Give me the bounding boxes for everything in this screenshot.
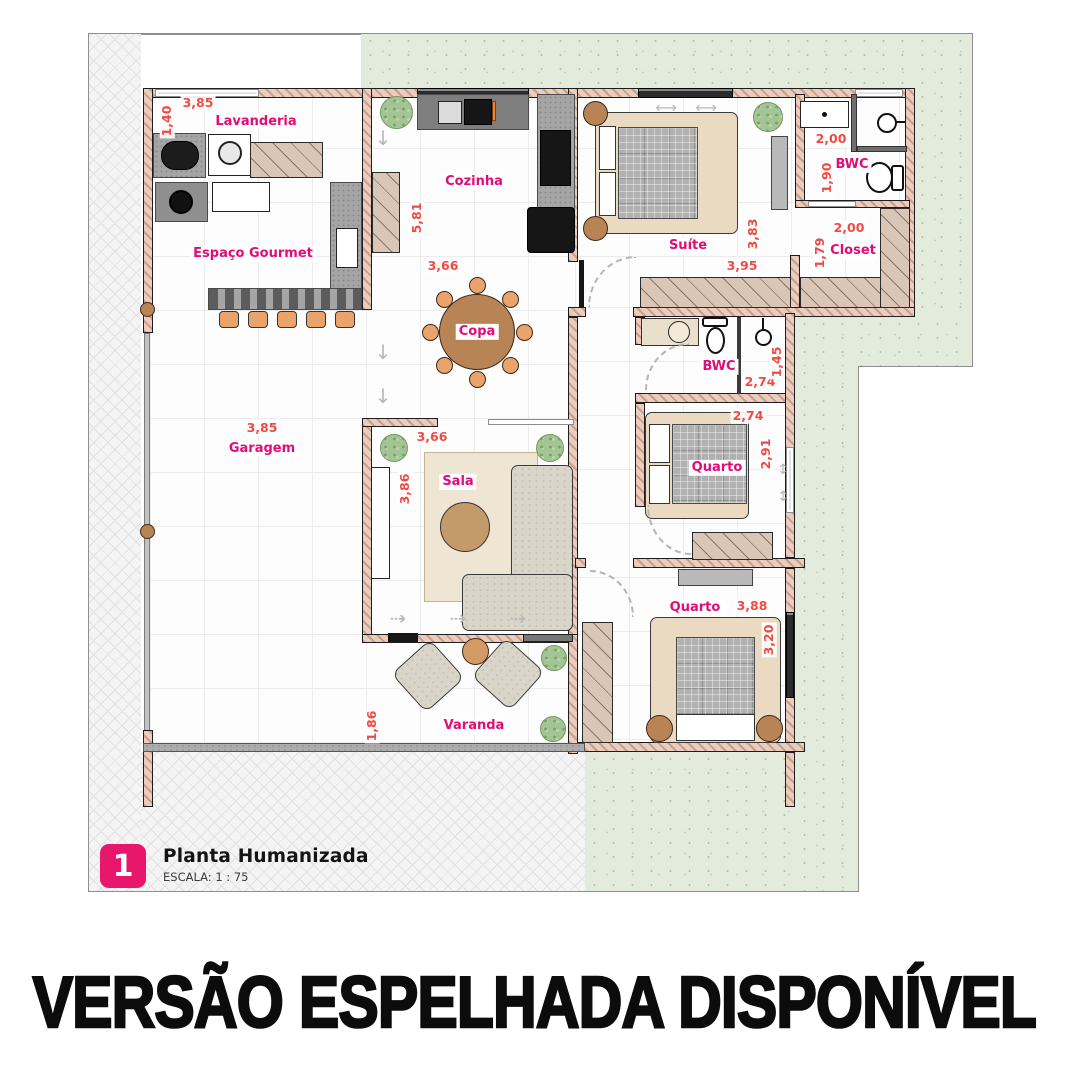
dim-lavanderia-h: 1,40	[160, 104, 175, 139]
room-label-quarto-fundo: Quarto	[667, 600, 724, 616]
flow-arrow-down: ↓	[375, 342, 392, 362]
garage-column	[140, 302, 155, 317]
laundry-sink	[161, 141, 199, 170]
bwc2-basin	[668, 321, 690, 343]
dim-quarto-fundo-w: 3,88	[735, 599, 770, 614]
dim-cozinha-h: 5,81	[410, 201, 425, 236]
suite-nightstand	[583, 216, 608, 241]
bar-stool	[219, 311, 239, 328]
wall-stub-bottom-right	[785, 752, 795, 807]
bwc2-toilet-tank	[702, 317, 728, 327]
washing-machine-drum	[218, 141, 242, 165]
dining-chair	[502, 357, 519, 374]
bwc1-shower-divider	[851, 94, 857, 152]
room-label-espaco-gourmet: Espaço Gourmet	[190, 246, 316, 262]
tv-panel-quarto2	[678, 569, 753, 586]
quarto2-foot-bench	[676, 714, 755, 741]
dim-suite-w: 3,95	[725, 259, 760, 274]
flow-arrow: ⇢	[510, 608, 527, 628]
window-arrow: ↕	[777, 490, 789, 504]
wall-quarto1-bottom-a	[575, 558, 586, 568]
dim-sala-w: 3,66	[415, 430, 450, 445]
dim-garagem-w: 3,85	[245, 421, 280, 436]
dim-bwc-social-h: 1,45	[770, 345, 785, 380]
gourmet-counter	[212, 182, 270, 212]
room-label-lavanderia: Lavanderia	[212, 114, 299, 130]
bwc2-shower-arm	[762, 318, 764, 330]
bwc2-shower-divider	[737, 317, 741, 394]
window-arrow: ↕	[777, 463, 789, 477]
floor-plan-image: ⟷ ⟷ ↕ ↕ ⇢ ⇢ ⇢	[0, 0, 1069, 1080]
sala-door-leaf	[388, 633, 418, 642]
room-label-quarto-meio: Quarto	[689, 460, 746, 476]
garage-column	[140, 524, 155, 539]
suite-mattress	[618, 127, 698, 219]
wall-suite-bottom-a	[568, 307, 586, 317]
plant-sala	[536, 434, 564, 462]
bwc1-shower-head	[877, 113, 897, 133]
window-suite	[638, 88, 733, 98]
wall-right-mid	[785, 313, 795, 558]
bar-stool	[277, 311, 297, 328]
kitchen-cooktop	[464, 99, 492, 125]
plant-sala	[380, 434, 408, 462]
plant-varanda	[541, 645, 567, 671]
dim-lavanderia-w: 3,85	[181, 96, 216, 111]
plant-cozinha	[380, 96, 413, 129]
title-number: 1	[113, 849, 134, 884]
room-label-suite: Suíte	[666, 238, 710, 254]
wall-quarto2-bottom	[575, 742, 805, 752]
plan-title: Planta Humanizada	[163, 846, 369, 867]
window-bwc-suite	[855, 89, 903, 97]
wall-varanda-right	[568, 634, 578, 754]
flow-arrow-down: ↓	[375, 386, 392, 406]
dim-varanda-h: 1,86	[365, 709, 380, 744]
plant-suite	[753, 102, 783, 132]
dining-chair	[469, 371, 486, 388]
bwc1-drain	[822, 112, 827, 117]
varanda-low-wall	[143, 743, 585, 752]
flow-arrow: ⇢	[390, 608, 407, 628]
room-label-varanda: Varanda	[441, 718, 508, 734]
window-sala-copa	[488, 419, 574, 425]
dim-suite-h: 3,83	[746, 217, 761, 252]
dim-sala-h: 3,86	[398, 472, 413, 507]
gourmet-sink	[336, 228, 358, 268]
bwc1-shower-arm	[896, 121, 906, 123]
tv-panel-suite	[771, 136, 788, 210]
dining-chair	[422, 324, 439, 341]
varanda-side-table	[462, 638, 489, 665]
door-bwc-threshold	[808, 201, 856, 207]
cooktop-handle	[492, 101, 496, 121]
room-label-bwc-social: BWC	[699, 359, 738, 375]
room-label-cozinha: Cozinha	[442, 174, 506, 190]
coffee-table	[440, 502, 490, 552]
plant-varanda	[540, 716, 566, 742]
wall-suite-bottom-b	[633, 307, 915, 317]
wall-gourmet-cozinha	[362, 88, 372, 310]
wall-quarto1-left	[635, 403, 645, 507]
banner-text: VERSÃO ESPELHADA DISPONÍVEL	[33, 962, 1036, 1044]
quarto2-mattress	[676, 637, 755, 715]
kitchen-cabinet-left	[372, 172, 400, 253]
room-label-copa: Copa	[456, 324, 499, 340]
paving-left	[89, 34, 141, 891]
dim-closet-h: 1,79	[813, 236, 828, 271]
room-label-closet: Closet	[827, 243, 879, 259]
suite-pillow	[599, 172, 616, 216]
window-slide-arrow: ⟷	[695, 101, 717, 116]
quarto2-wardrobe	[582, 622, 613, 743]
closet-wardrobe-right	[880, 208, 910, 308]
quarto2-nightstand	[756, 715, 783, 742]
sliding-door	[523, 634, 573, 642]
refrigerator	[527, 207, 575, 253]
quarto1-pillow	[649, 424, 670, 463]
dim-quarto-fundo-h: 3,20	[762, 623, 777, 658]
tv-panel-sala	[371, 467, 390, 579]
dim-bwc-suite-w: 2,00	[814, 132, 849, 147]
bar-stool	[306, 311, 326, 328]
flow-arrow-down: ↓	[375, 128, 392, 148]
wall-bwc2-bottom	[635, 393, 795, 403]
title-number-badge: 1	[100, 844, 146, 888]
window-slide-arrow: ⟷	[655, 101, 677, 116]
grass-mid	[795, 317, 972, 366]
grass-top	[361, 34, 972, 94]
bar-stool	[248, 311, 268, 328]
wall-suite-closet	[790, 255, 800, 310]
grass-bottom	[585, 752, 795, 891]
bbq-burner	[169, 190, 193, 214]
wall-stub-bottom-left	[143, 730, 153, 807]
dining-chair	[469, 277, 486, 294]
window-quarto2	[786, 612, 794, 698]
bwc1-shower-sill	[857, 146, 907, 152]
suite-pillow	[599, 126, 616, 170]
flow-arrow: ⇢	[450, 608, 467, 628]
quarto2-nightstand	[646, 715, 673, 742]
fence-left	[144, 333, 150, 745]
room-label-bwc-suite: BWC	[832, 157, 871, 173]
bwc2-shower-head	[755, 329, 772, 346]
dim-cozinha-w: 3,66	[426, 259, 461, 274]
plan-scale: ESCALA: 1 : 75	[163, 870, 248, 884]
room-label-garagem: Garagem	[226, 441, 298, 457]
bwc2-toilet-bowl	[706, 327, 725, 354]
dim-quarto-meio-h: 2,91	[759, 437, 774, 472]
banner: VERSÃO ESPELHADA DISPONÍVEL	[0, 962, 1069, 1044]
dining-chair	[516, 324, 533, 341]
quarto1-wardrobe	[692, 532, 773, 560]
hall-door-leaf	[579, 260, 584, 307]
bwc1-toilet-tank	[891, 165, 904, 191]
bar-counter	[208, 288, 362, 310]
dim-quarto-meio-w: 2,74	[731, 409, 766, 424]
suite-wardrobe	[640, 277, 791, 308]
kitchen-stove	[540, 130, 571, 186]
wall-left	[143, 88, 153, 333]
closet-wardrobe-bottom	[800, 277, 881, 308]
laundry-cabinet	[250, 142, 323, 178]
kitchen-sink	[438, 101, 462, 124]
room-label-sala: Sala	[439, 474, 476, 490]
wall-sala-top	[362, 418, 438, 427]
quarto1-pillow	[649, 465, 670, 504]
dim-closet-w: 2,00	[832, 221, 867, 236]
grass-right-col	[795, 366, 858, 891]
suite-nightstand	[583, 101, 608, 126]
bar-stool	[335, 311, 355, 328]
